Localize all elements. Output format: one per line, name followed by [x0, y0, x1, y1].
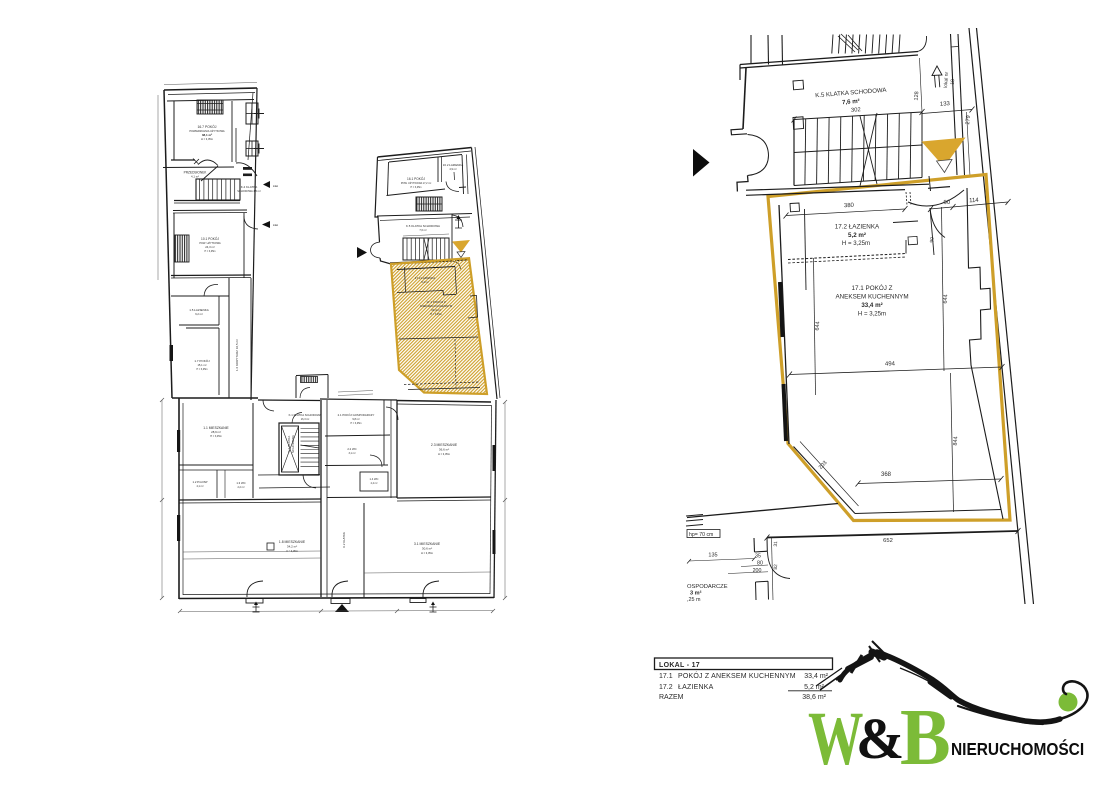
svg-text:1.5 ŁAZIENKA: 1.5 ŁAZIENKA: [189, 308, 209, 312]
svg-text:1.3 WC: 1.3 WC: [236, 481, 245, 485]
svg-text:302: 302: [851, 107, 861, 114]
svg-text:K.2 KLATKA: K.2 KLATKA: [342, 532, 346, 548]
svg-text:135: 135: [708, 553, 717, 559]
svg-text:,25 m: ,25 m: [687, 597, 701, 603]
svg-text:K.1 KLATKA SCHODOWA: K.1 KLATKA SCHODOWA: [289, 413, 322, 417]
svg-text:16.1 POKÓJ: 16.1 POKÓJ: [407, 176, 425, 181]
svg-text:17.2 ŁAZIENKA: 17.2 ŁAZIENKA: [415, 276, 435, 280]
svg-text:H = 3,05m: H = 3,05m: [410, 186, 421, 189]
svg-text:2.3 MIESZKANIE: 2.3 MIESZKANIE: [431, 443, 458, 447]
svg-text:24,3 m²: 24,3 m²: [205, 245, 215, 249]
svg-text:33,4 m²: 33,4 m²: [431, 308, 441, 312]
svg-text:33,4 m²: 33,4 m²: [861, 302, 882, 309]
svg-text:16,3 m²: 16,3 m²: [301, 418, 310, 421]
svg-text:6,2 m²: 6,2 m²: [195, 312, 203, 316]
svg-text:133: 133: [940, 101, 951, 108]
svg-text:H = 3,05m: H = 3,05m: [350, 422, 361, 425]
svg-text:RAZEM: RAZEM: [659, 694, 684, 701]
svg-text:203: 203: [818, 460, 829, 471]
svg-text:H = 3,05m: H = 3,05m: [438, 452, 450, 456]
svg-text:16.7 POKÓJ: 16.7 POKÓJ: [197, 124, 216, 129]
svg-text:368: 368: [881, 472, 892, 478]
svg-text:lokal: lokal: [273, 185, 278, 188]
svg-text:LOKAL - 17: LOKAL - 17: [659, 662, 700, 669]
svg-text:279: 279: [965, 115, 972, 125]
svg-text:POKÓJ Z ANEKSEM KUCHENNYM: POKÓJ Z ANEKSEM KUCHENNYM: [678, 671, 796, 680]
svg-text:90: 90: [943, 200, 951, 206]
svg-text:ANEKSEM KUCHENNYM: ANEKSEM KUCHENNYM: [835, 294, 908, 301]
svg-text:POW. UŻYTKOWA 17,2 m²: POW. UŻYTKOWA 17,2 m²: [401, 182, 431, 185]
svg-text:7,6 m²: 7,6 m²: [419, 228, 426, 232]
svg-text:200: 200: [753, 568, 762, 574]
svg-text:90: 90: [929, 237, 935, 243]
svg-text:16.2 ŁAZIENKA: 16.2 ŁAZIENKA: [443, 163, 463, 167]
svg-text:hp= 70 cm: hp= 70 cm: [689, 532, 713, 538]
svg-text:34,2 m²: 34,2 m²: [287, 545, 297, 549]
svg-text:844: 844: [953, 436, 959, 445]
svg-text:17.2 ŁAZIENKA: 17.2 ŁAZIENKA: [835, 224, 880, 231]
svg-text:H = 3,25m: H = 3,25m: [858, 311, 886, 318]
svg-text:15,1 m²: 15,1 m²: [197, 363, 206, 367]
svg-text:K.5 KLATKA SCHODOWA: K.5 KLATKA SCHODOWA: [406, 224, 440, 228]
svg-text:644: 644: [815, 321, 821, 330]
svg-text:17.2: 17.2: [659, 684, 673, 691]
svg-text:3 m²: 3 m²: [690, 590, 702, 597]
svg-text:7,6 m²: 7,6 m²: [842, 98, 860, 106]
svg-text:K.4 KLATKA: K.4 KLATKA: [241, 185, 258, 189]
svg-text:38,1 m²: 38,1 m²: [202, 133, 212, 137]
svg-text:114: 114: [969, 198, 980, 205]
svg-text:ŁAZIENKA: ŁAZIENKA: [678, 684, 714, 691]
svg-text:5,2 m²: 5,2 m²: [421, 280, 428, 284]
svg-text:35: 35: [755, 554, 761, 560]
svg-text:1.8 MIESZKANIE: 1.8 MIESZKANIE: [279, 540, 306, 544]
svg-text:1.2 P.GOSP: 1.2 P.GOSP: [192, 480, 207, 484]
svg-text:36,6 m²: 36,6 m²: [439, 448, 449, 452]
svg-text:3.1 MIESZKANIE: 3.1 MIESZKANIE: [414, 542, 441, 546]
svg-text:128: 128: [914, 91, 921, 101]
svg-text:&: &: [856, 706, 904, 771]
svg-text:H = 3,05m: H = 3,05m: [196, 368, 207, 371]
svg-text:H = 3,05m: H = 3,05m: [210, 435, 222, 438]
svg-text:2,4 m²: 2,4 m²: [371, 482, 378, 485]
svg-text:4,9 m²: 4,9 m²: [449, 167, 456, 171]
svg-text:9,8 m²: 9,8 m²: [352, 417, 359, 421]
svg-text:SCHODOWA 4,5 m²: SCHODOWA 4,5 m²: [237, 189, 261, 193]
svg-text:10.1 POKÓJ: 10.1 POKÓJ: [201, 236, 219, 241]
svg-text:80: 80: [757, 561, 763, 567]
svg-text:K.5 KLATKA SCHODOWA: K.5 KLATKA SCHODOWA: [815, 87, 888, 100]
svg-text:lokal: lokal: [273, 224, 278, 227]
svg-text:5,2 m²: 5,2 m²: [848, 232, 866, 239]
svg-text:2.1 POKÓJ GOSPODARCZY: 2.1 POKÓJ GOSPODARCZY: [338, 412, 375, 417]
svg-text:1.6 KORYTARZ 10,5 m²: 1.6 KORYTARZ 10,5 m²: [235, 339, 239, 371]
svg-text:380: 380: [844, 203, 855, 210]
svg-text:17.1: 17.1: [659, 673, 673, 680]
svg-text:33,4 m²: 33,4 m²: [804, 673, 828, 680]
svg-text:4,1 m²: 4,1 m²: [196, 485, 203, 488]
svg-text:30,6 m²: 30,6 m²: [422, 547, 432, 551]
svg-text:3,1 m²: 3,1 m²: [348, 452, 355, 455]
svg-text:31: 31: [773, 541, 779, 547]
svg-text:H = 3,05m: H = 3,05m: [201, 137, 213, 141]
svg-text:494: 494: [885, 361, 896, 367]
svg-text:1.4 WC: 1.4 WC: [370, 477, 379, 481]
svg-text:H = 3,25m: H = 3,25m: [842, 240, 870, 247]
svg-text:lokal nr: lokal nr: [943, 71, 950, 88]
svg-text:H = 3,25m: H = 3,25m: [430, 313, 442, 316]
svg-text:B: B: [900, 692, 951, 781]
svg-text:H = 3,05m: H = 3,05m: [421, 551, 433, 555]
svg-text:2,2 m²: 2,2 m²: [237, 486, 244, 489]
svg-text:28,9 m²: 28,9 m²: [211, 430, 221, 434]
svg-text:4,1 m²: 4,1 m²: [191, 175, 199, 179]
svg-text:652: 652: [883, 538, 893, 544]
svg-text:NIERUCHOMOŚCI: NIERUCHOMOŚCI: [951, 739, 1084, 759]
svg-text:SCHODOWA: SCHODOWA: [291, 435, 295, 453]
svg-text:644: 644: [943, 294, 949, 303]
svg-text:2.2 WC: 2.2 WC: [347, 447, 356, 451]
svg-text:H = 3,05m: H = 3,05m: [204, 250, 215, 253]
svg-text:17.1 POKÓJ Z: 17.1 POKÓJ Z: [852, 283, 893, 292]
svg-text:OSPODARCZE: OSPODARCZE: [687, 584, 728, 590]
svg-text:1.7 POKÓJ: 1.7 POKÓJ: [194, 358, 210, 363]
svg-text:82: 82: [773, 564, 779, 570]
